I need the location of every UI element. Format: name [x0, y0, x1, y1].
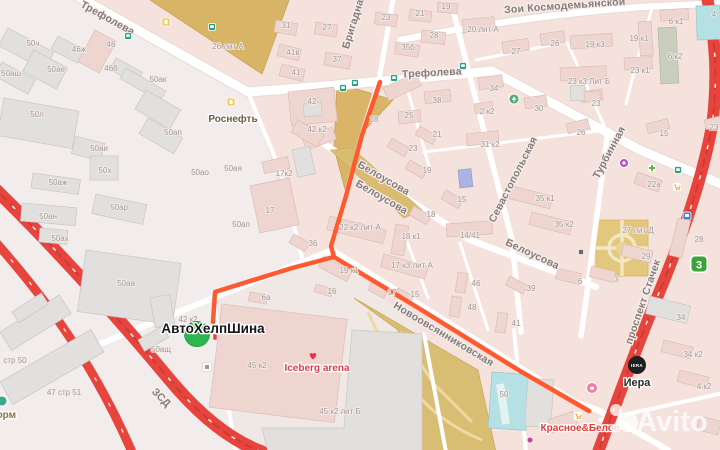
building-label: 50ар — [110, 203, 128, 212]
building-label: 50ах — [51, 234, 68, 243]
building-label: 6 — [578, 277, 583, 286]
service-icon[interactable] — [579, 250, 584, 255]
building-label: 42 к2 — [307, 125, 327, 134]
building-label: 26 лит А — [212, 42, 244, 51]
building-label: 35 к2 — [554, 220, 574, 229]
building-label: 19 к1 — [339, 266, 359, 275]
building-label: 3 — [614, 275, 619, 284]
building-label: 37 — [333, 55, 342, 64]
building-label: 22 к2 лит А — [339, 223, 381, 232]
building-label: 45 к2 лит Б — [319, 407, 361, 416]
building-label: 29 — [642, 252, 651, 261]
building-label: 28 — [695, 235, 704, 244]
building-label: 4 к2 — [697, 382, 712, 391]
building-label: 41 — [292, 68, 301, 77]
building-label: 22а — [647, 180, 661, 189]
pharmacy-icon[interactable] — [648, 164, 656, 172]
building-label: 34 — [677, 313, 686, 322]
building-label: 17 — [266, 206, 275, 215]
building-label: 50ап — [232, 220, 250, 229]
building-label: 47 стр 51 — [47, 388, 82, 397]
building-label: 4 — [712, 10, 717, 19]
building-label: 15 — [411, 290, 420, 299]
building-label: 34 — [490, 84, 499, 93]
building-label: 19 — [442, 2, 451, 11]
building-label: 48 — [468, 303, 477, 312]
building-label: стр 50 — [3, 356, 27, 365]
building-label: 50ая — [224, 164, 242, 173]
clothes-shop-icon[interactable] — [587, 383, 598, 394]
building-label: 19 — [423, 166, 432, 175]
shop-cart-icon[interactable] — [574, 412, 583, 421]
poi-label-form[interactable]: форм — [0, 409, 16, 421]
building-label: 17 — [388, 288, 397, 297]
building-label: 50ае — [47, 65, 65, 74]
building-label: 27 — [323, 23, 332, 32]
badge-number: 3 — [696, 260, 702, 272]
poi-label-rosneft[interactable]: Роснефть — [208, 113, 257, 125]
building-label: 31 к2 — [480, 140, 500, 149]
building-label: 28 — [430, 31, 439, 40]
building-label: 25 — [405, 111, 414, 120]
building-label: 19 к1 — [629, 34, 649, 43]
poi-dot-icon[interactable] — [527, 437, 533, 443]
building-label: 45 к2 — [247, 361, 267, 370]
building-label: 39 — [527, 284, 536, 293]
building-label: 50аа — [117, 279, 135, 288]
building-label: 50х — [99, 166, 112, 175]
building-label: 26 — [551, 39, 560, 48]
building-label: 18 к1 — [401, 232, 421, 241]
bus-stop-icon[interactable] — [125, 33, 132, 40]
building-label: 46б — [104, 64, 118, 73]
building-label: 17 к3 лит А — [391, 261, 433, 270]
building-label: 20 лит А — [467, 25, 499, 34]
bus-stop-icon[interactable] — [460, 63, 467, 70]
building-label: 50ак — [150, 75, 167, 84]
building-label: 27 — [512, 47, 521, 56]
building-label: 23 — [592, 99, 601, 108]
building-label: 46 — [107, 40, 116, 49]
poi-label-krasnoe-beloe[interactable]: Красное&Белое — [541, 423, 620, 434]
building-label: 50ан — [39, 212, 57, 221]
building-label: 36 — [309, 239, 318, 248]
building-label: 21 — [433, 130, 442, 139]
fuel-station-icon[interactable] — [162, 18, 170, 26]
bus-stop-icon[interactable] — [209, 24, 216, 31]
map-container[interactable]: 50ч46ж4646б50аш50ае50ак50л50ап50аи50х50а… — [0, 0, 720, 450]
building-label: 41в — [286, 48, 299, 57]
bus-stop-icon[interactable] — [675, 167, 682, 174]
building-label: 23 к1 — [630, 66, 650, 75]
transport-icon[interactable] — [683, 212, 691, 220]
bus-stop-icon[interactable] — [391, 75, 398, 82]
shop-cart-icon[interactable] — [673, 183, 682, 192]
building-label: 50л — [30, 110, 44, 119]
building-label: 28 — [370, 115, 379, 124]
building-label: 15 — [660, 129, 669, 138]
building-label: 15 — [458, 195, 467, 204]
beauty-icon[interactable] — [620, 159, 629, 168]
building-label: 50ащ — [151, 345, 171, 354]
transit-badge-3[interactable]: 3 — [690, 255, 708, 273]
building-label: 50аж — [49, 178, 68, 187]
building-label: 30 — [535, 104, 544, 113]
building-label: 16 — [328, 287, 337, 296]
building-label: 6а — [262, 293, 271, 302]
building-label: 6 к2 — [668, 52, 683, 61]
building-label: 14/41 — [460, 231, 481, 240]
map-canvas[interactable]: 50ч46ж4646б50аш50ае50ак50л50ап50аи50х50а… — [0, 0, 720, 450]
building-label: 35 к1 — [535, 194, 555, 203]
poi-label-iera[interactable]: Иера — [624, 377, 652, 389]
building-label: 50ао — [191, 168, 209, 177]
park-icon[interactable] — [509, 94, 519, 104]
building-label: 23 — [409, 144, 418, 153]
building-label: 46 — [472, 279, 481, 288]
poi-label-iceberg[interactable]: Iceberg arena — [284, 363, 349, 374]
bus-stop-icon[interactable] — [352, 80, 359, 87]
building-label: 27 лит Д — [622, 226, 654, 235]
building-label: 50ч — [26, 39, 39, 48]
building-label: 17к2 — [276, 169, 293, 178]
building-label: 19 к3 — [585, 40, 605, 49]
building-label: 41 — [512, 319, 521, 328]
building-label: 50ап — [164, 128, 182, 137]
watermark-text: Avito — [636, 406, 707, 438]
building-label: 6 к1 — [669, 17, 684, 26]
building-label: 34 к2 — [683, 350, 703, 359]
building-label: 26 — [577, 128, 586, 137]
building-label: 42 — [308, 97, 317, 106]
building-label: 50 — [500, 390, 509, 399]
bus-stop-icon[interactable] — [340, 85, 347, 92]
iera-logo-text: IERA — [631, 363, 643, 368]
building-label: 21 — [416, 9, 425, 18]
building-label: 50аш — [1, 69, 21, 78]
park-icon[interactable] — [0, 396, 7, 406]
building-label: 23 — [382, 13, 391, 22]
destination-label: АвтоХелпШина — [161, 321, 265, 336]
building-label: 2 к2 — [480, 107, 495, 116]
fuel-station-icon[interactable] — [227, 98, 235, 106]
iera-logo[interactable]: IERA — [628, 356, 646, 374]
building-label: 18 — [427, 210, 436, 219]
building-label: 23 — [710, 123, 719, 132]
building-label: 35б — [401, 43, 415, 52]
building-label: 38 — [433, 96, 442, 105]
building-label: 23 к3 Лит Б — [568, 77, 610, 86]
building-label: 46ж — [72, 45, 87, 54]
building-label: 50аи — [90, 144, 108, 153]
stadium-icon[interactable] — [203, 363, 212, 372]
building-label: 31 — [282, 21, 291, 30]
